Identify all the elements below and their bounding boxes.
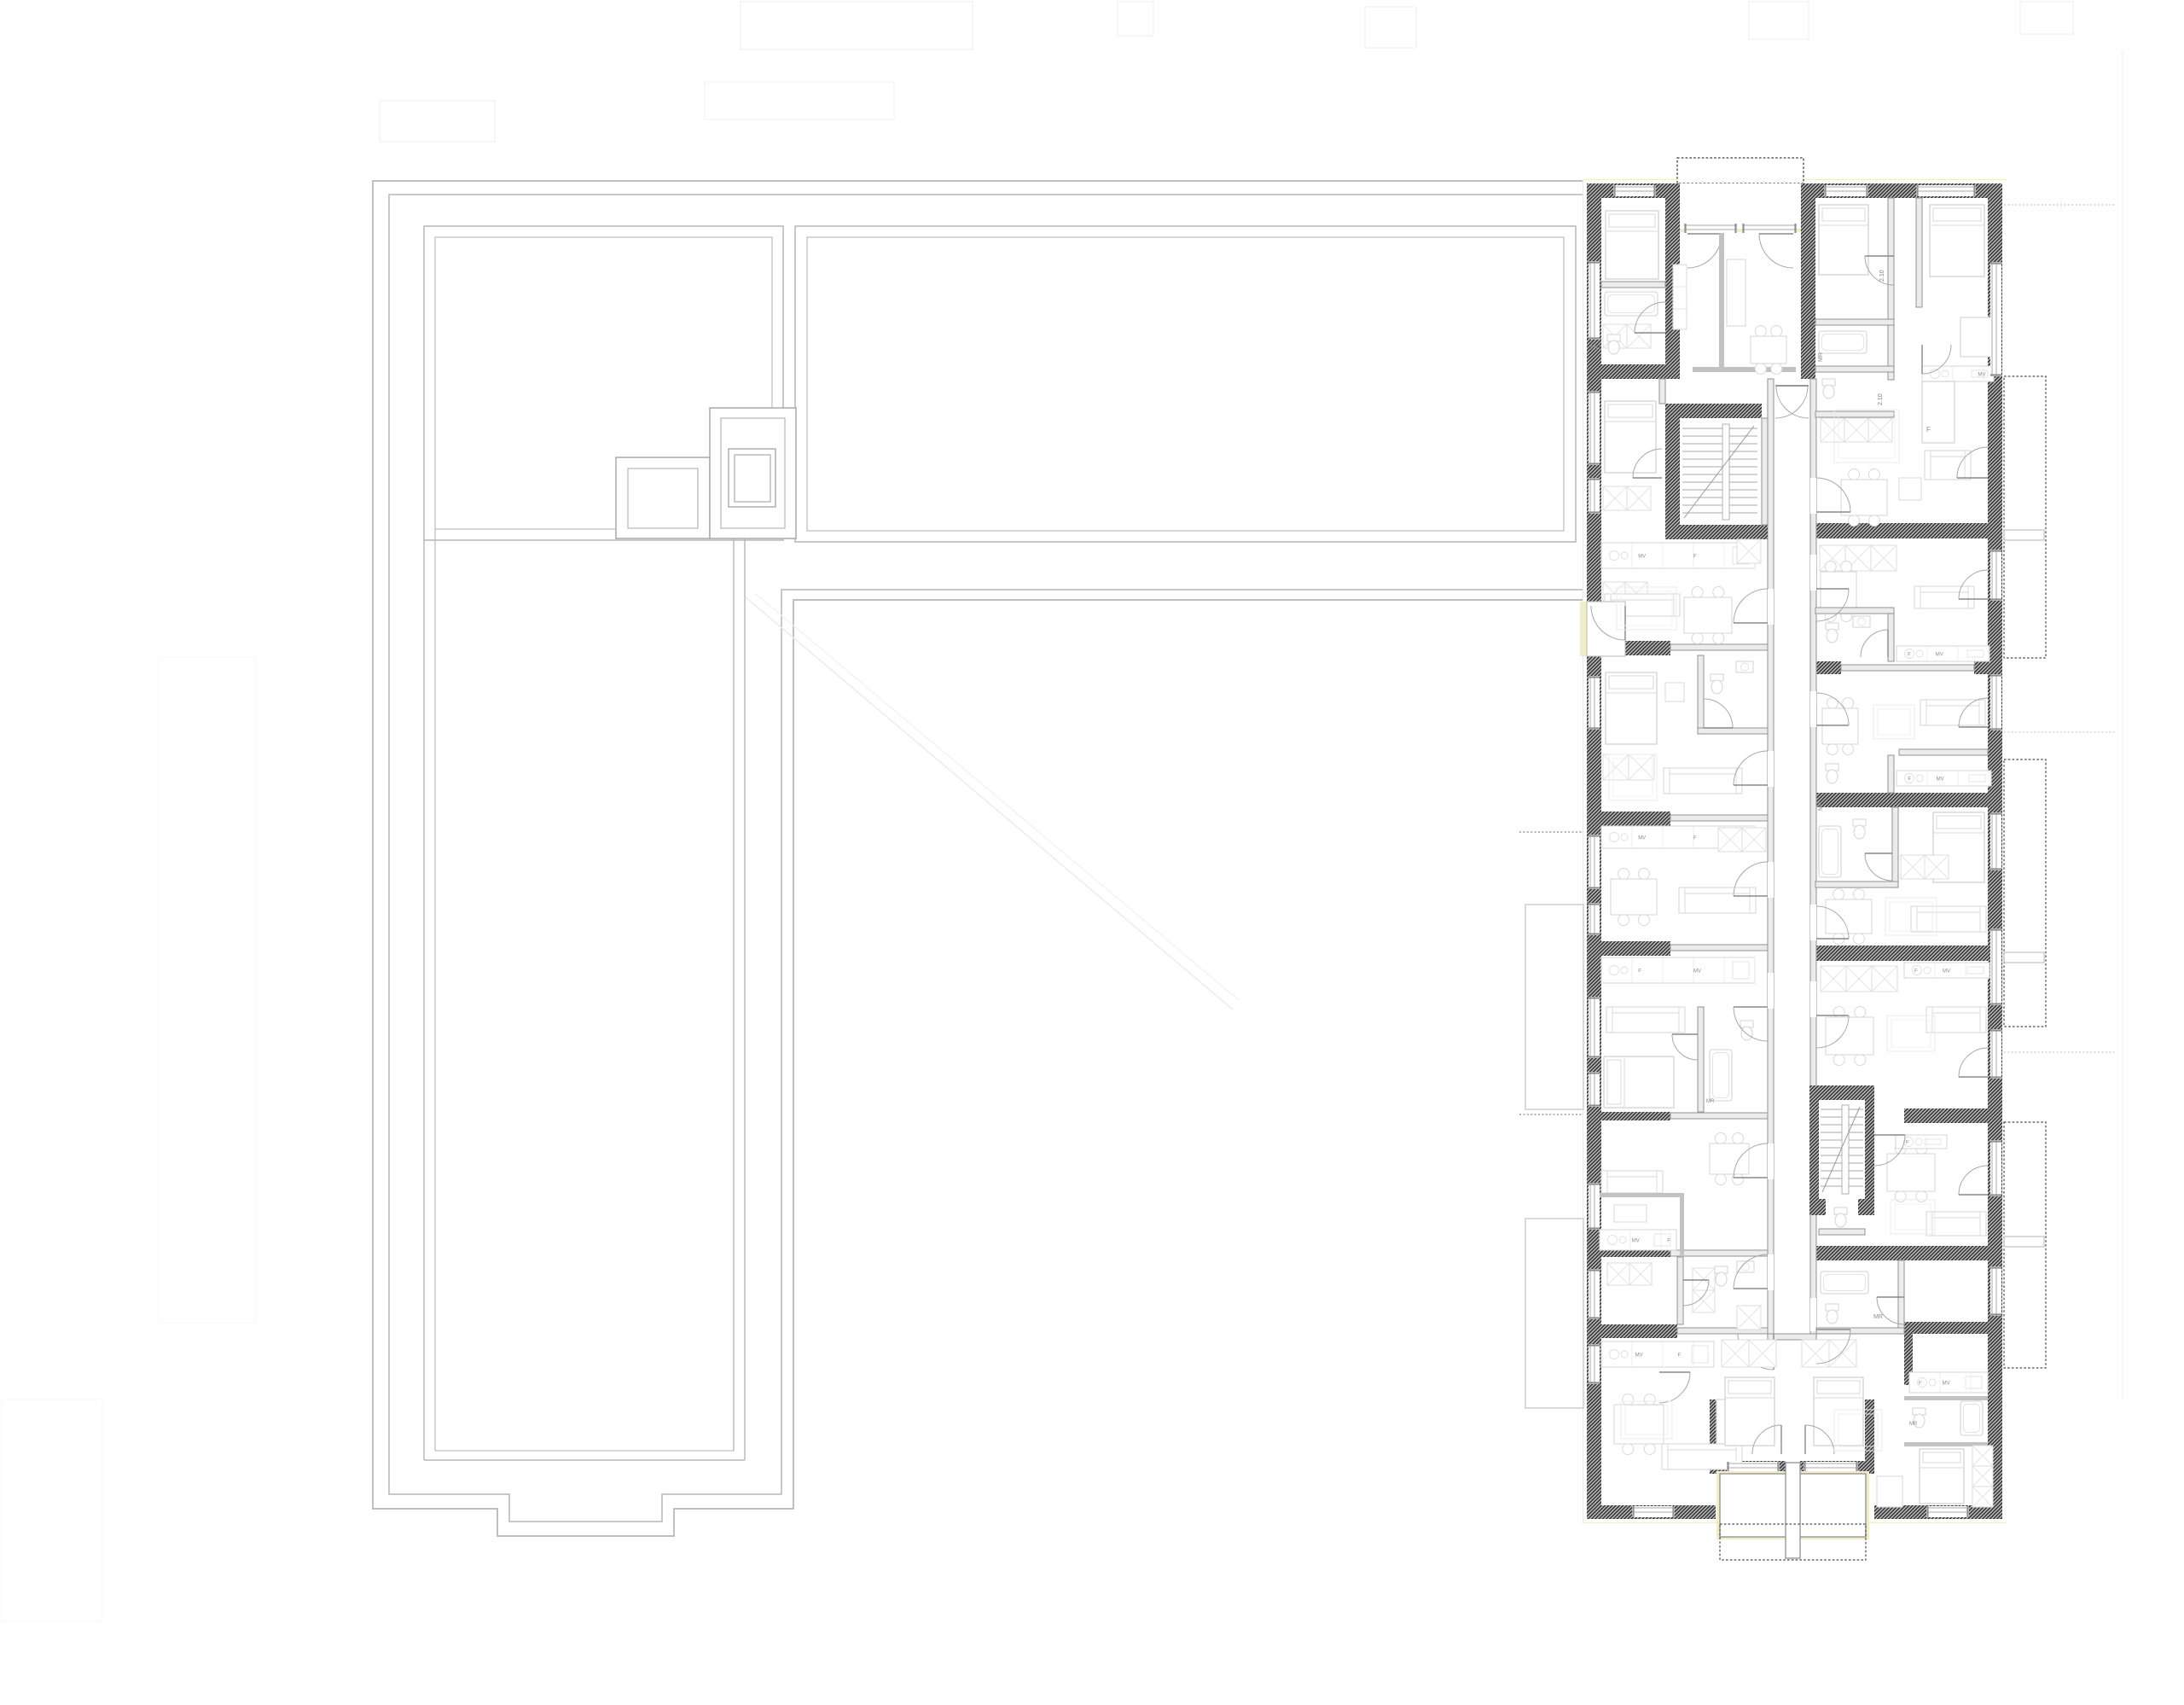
svg-text:F: F bbox=[1919, 1382, 1922, 1387]
svg-text:MR: MR bbox=[1706, 1099, 1715, 1104]
svg-text:MR: MR bbox=[1590, 344, 1601, 352]
svg-text:MV: MV bbox=[1937, 777, 1944, 783]
svg-text:F: F bbox=[1693, 555, 1697, 560]
svg-text:MV: MV bbox=[1635, 1353, 1643, 1359]
svg-text:F: F bbox=[1914, 969, 1918, 975]
svg-text:MR: MR bbox=[1818, 352, 1824, 362]
svg-text:F: F bbox=[1908, 777, 1911, 783]
svg-text:F: F bbox=[1667, 1239, 1670, 1244]
svg-text:F: F bbox=[1678, 1353, 1682, 1359]
svg-text:MR: MR bbox=[1873, 1314, 1883, 1320]
svg-text:F: F bbox=[1926, 426, 1931, 434]
svg-text:2.10: 2.10 bbox=[1879, 270, 1885, 282]
svg-text:F: F bbox=[1638, 969, 1641, 975]
svg-text:MV: MV bbox=[1638, 555, 1646, 560]
svg-text:2.10: 2.10 bbox=[1878, 393, 1884, 405]
svg-text:MV: MV bbox=[1978, 373, 1986, 378]
svg-text:MV: MV bbox=[1936, 653, 1943, 658]
svg-text:MV: MV bbox=[1638, 836, 1646, 841]
svg-text:MV: MV bbox=[1632, 1239, 1640, 1244]
svg-text:MV: MV bbox=[1943, 1382, 1950, 1387]
svg-text:MV: MV bbox=[1693, 969, 1701, 975]
svg-text:MR: MR bbox=[1909, 1422, 1918, 1427]
svg-text:F: F bbox=[1908, 653, 1911, 658]
svg-text:MR: MR bbox=[1818, 801, 1824, 811]
svg-text:F: F bbox=[1693, 836, 1697, 841]
svg-text:F: F bbox=[1906, 1141, 1909, 1146]
svg-text:MV: MV bbox=[1943, 969, 1950, 975]
